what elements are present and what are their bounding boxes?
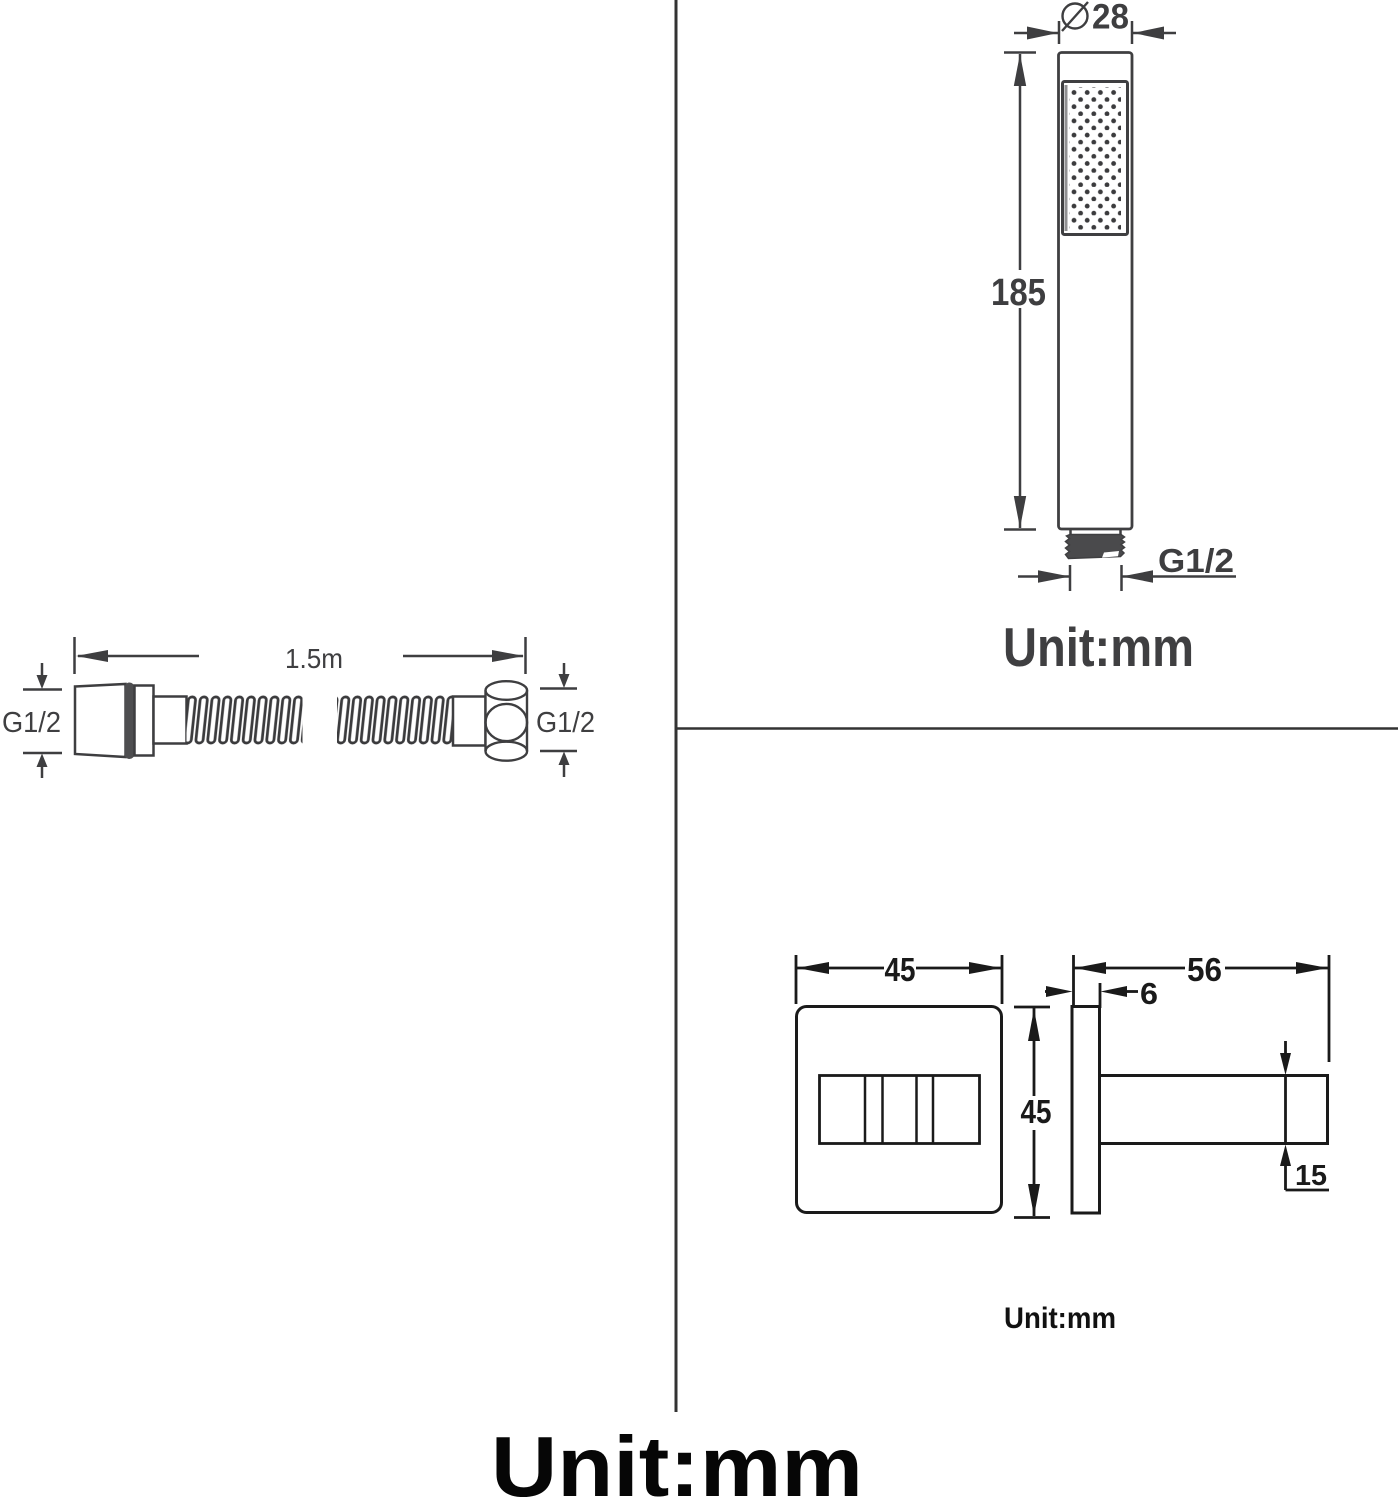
- svg-text:6: 6: [1140, 976, 1158, 1011]
- svg-text:45: 45: [885, 951, 916, 988]
- svg-text:1.5m: 1.5m: [285, 643, 343, 674]
- svg-text:G1/2: G1/2: [536, 707, 595, 739]
- svg-text:45: 45: [1021, 1093, 1052, 1130]
- svg-text:28: 28: [1092, 0, 1129, 37]
- svg-text:185: 185: [991, 272, 1046, 314]
- svg-text:G1/2: G1/2: [2, 707, 61, 739]
- svg-text:G1/2: G1/2: [1158, 542, 1234, 579]
- svg-text:Unit:mm: Unit:mm: [491, 1420, 863, 1500]
- svg-text:Unit:mm: Unit:mm: [1003, 616, 1194, 678]
- svg-text:Unit:mm: Unit:mm: [1004, 1302, 1116, 1335]
- svg-text:56: 56: [1187, 951, 1222, 988]
- svg-text:15: 15: [1295, 1160, 1327, 1192]
